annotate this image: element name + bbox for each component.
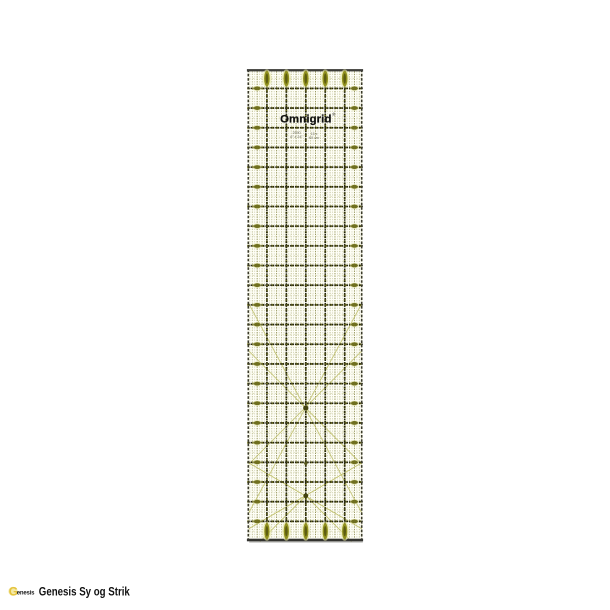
svg-text:2590: 2590	[293, 131, 301, 135]
svg-text:Genesis Sy og Strik: Genesis Sy og Strik	[39, 586, 131, 598]
svg-text:enesis: enesis	[17, 591, 35, 597]
svg-text:6" x 24": 6" x 24"	[290, 135, 303, 139]
svg-text:Omnigrid: Omnigrid	[280, 114, 331, 126]
svg-text:60 cm: 60 cm	[309, 136, 319, 140]
